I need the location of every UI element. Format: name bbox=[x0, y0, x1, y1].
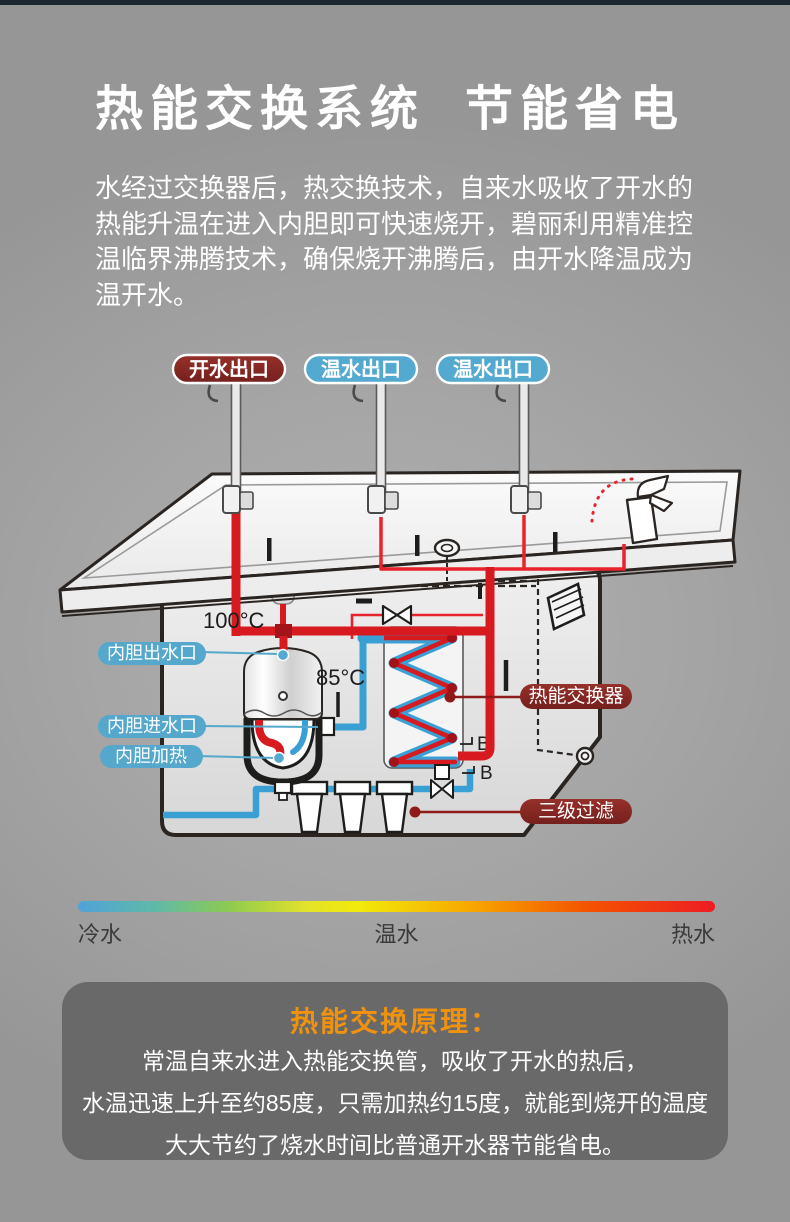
scale-label-warm: 温水 bbox=[374, 917, 418, 949]
page-title-left: 热能交换系统 bbox=[95, 83, 425, 136]
scale-label-cold: 冷水 bbox=[78, 917, 122, 949]
filter-cartridges bbox=[292, 782, 412, 832]
intro-line: 热能升温在进入内胆即可快速烧开，碧丽利用精准控 bbox=[95, 207, 715, 243]
top-accent-bar bbox=[0, 0, 790, 5]
port-mark-b2: B bbox=[480, 763, 493, 784]
pill-three-stage-filter-text: 三级过滤 bbox=[538, 800, 614, 822]
page: 热能交换系统节能省电 水经过交换器后，热交换技术，自来水吸收了开水的 热能升温在… bbox=[0, 0, 790, 1222]
principle-line: 常温自来水进入热能交换管，吸收了开水的热后， bbox=[62, 1040, 728, 1082]
scale-label-hot: 热水 bbox=[671, 917, 715, 949]
pill-warm-outlet-2-text: 温水出口 bbox=[453, 357, 533, 381]
page-title-right: 节能省电 bbox=[465, 83, 685, 136]
temp-100c: 100°C bbox=[203, 608, 265, 633]
intro-line: 温开水。 bbox=[95, 278, 715, 314]
intro-paragraph: 水经过交换器后，热交换技术，自来水吸收了开水的 热能升温在进入内胆即可快速烧开，… bbox=[95, 171, 715, 313]
temperature-gradient-bar bbox=[78, 901, 715, 912]
pill-heat-exchanger-text: 热能交换器 bbox=[528, 685, 623, 707]
intro-line: 温临界沸腾技术，确保烧开沸腾后，由开水降温成为 bbox=[95, 242, 715, 278]
pill-warm-outlet-1-text: 温水出口 bbox=[321, 357, 401, 381]
temperature-scale-labels: 冷水 温水 热水 bbox=[78, 917, 715, 943]
principle-title: 热能交换原理： bbox=[62, 1000, 728, 1040]
drain-outlet bbox=[577, 748, 593, 764]
pill-tank-outlet-text: 内胆出水口 bbox=[107, 643, 197, 663]
principle-line: 水温迅速上升至约85度，只需加热约15度，就能到烧开的温度 bbox=[62, 1082, 728, 1124]
pill-tank-heater-text: 内胆加热 bbox=[115, 746, 187, 766]
outlet-labels: 开水出口 温水出口 温水出口 bbox=[173, 355, 549, 383]
pill-tank-inlet-text: 内胆进水口 bbox=[107, 716, 197, 736]
intro-line: 水经过交换器后，热交换技术，自来水吸收了开水的 bbox=[95, 171, 715, 207]
page-title: 热能交换系统节能省电 bbox=[95, 83, 785, 137]
principle-box: 热能交换原理： 常温自来水进入热能交换管，吸收了开水的热后， 水温迅速上升至约8… bbox=[62, 982, 728, 1160]
pill-boiling-outlet-text: 开水出口 bbox=[189, 358, 269, 381]
principle-line: 大大节约了烧水时间比普通开水器节能省电。 bbox=[62, 1124, 728, 1166]
temp-85c: 85°C bbox=[316, 665, 365, 690]
plumbing-diagram: B B bbox=[0, 345, 790, 877]
